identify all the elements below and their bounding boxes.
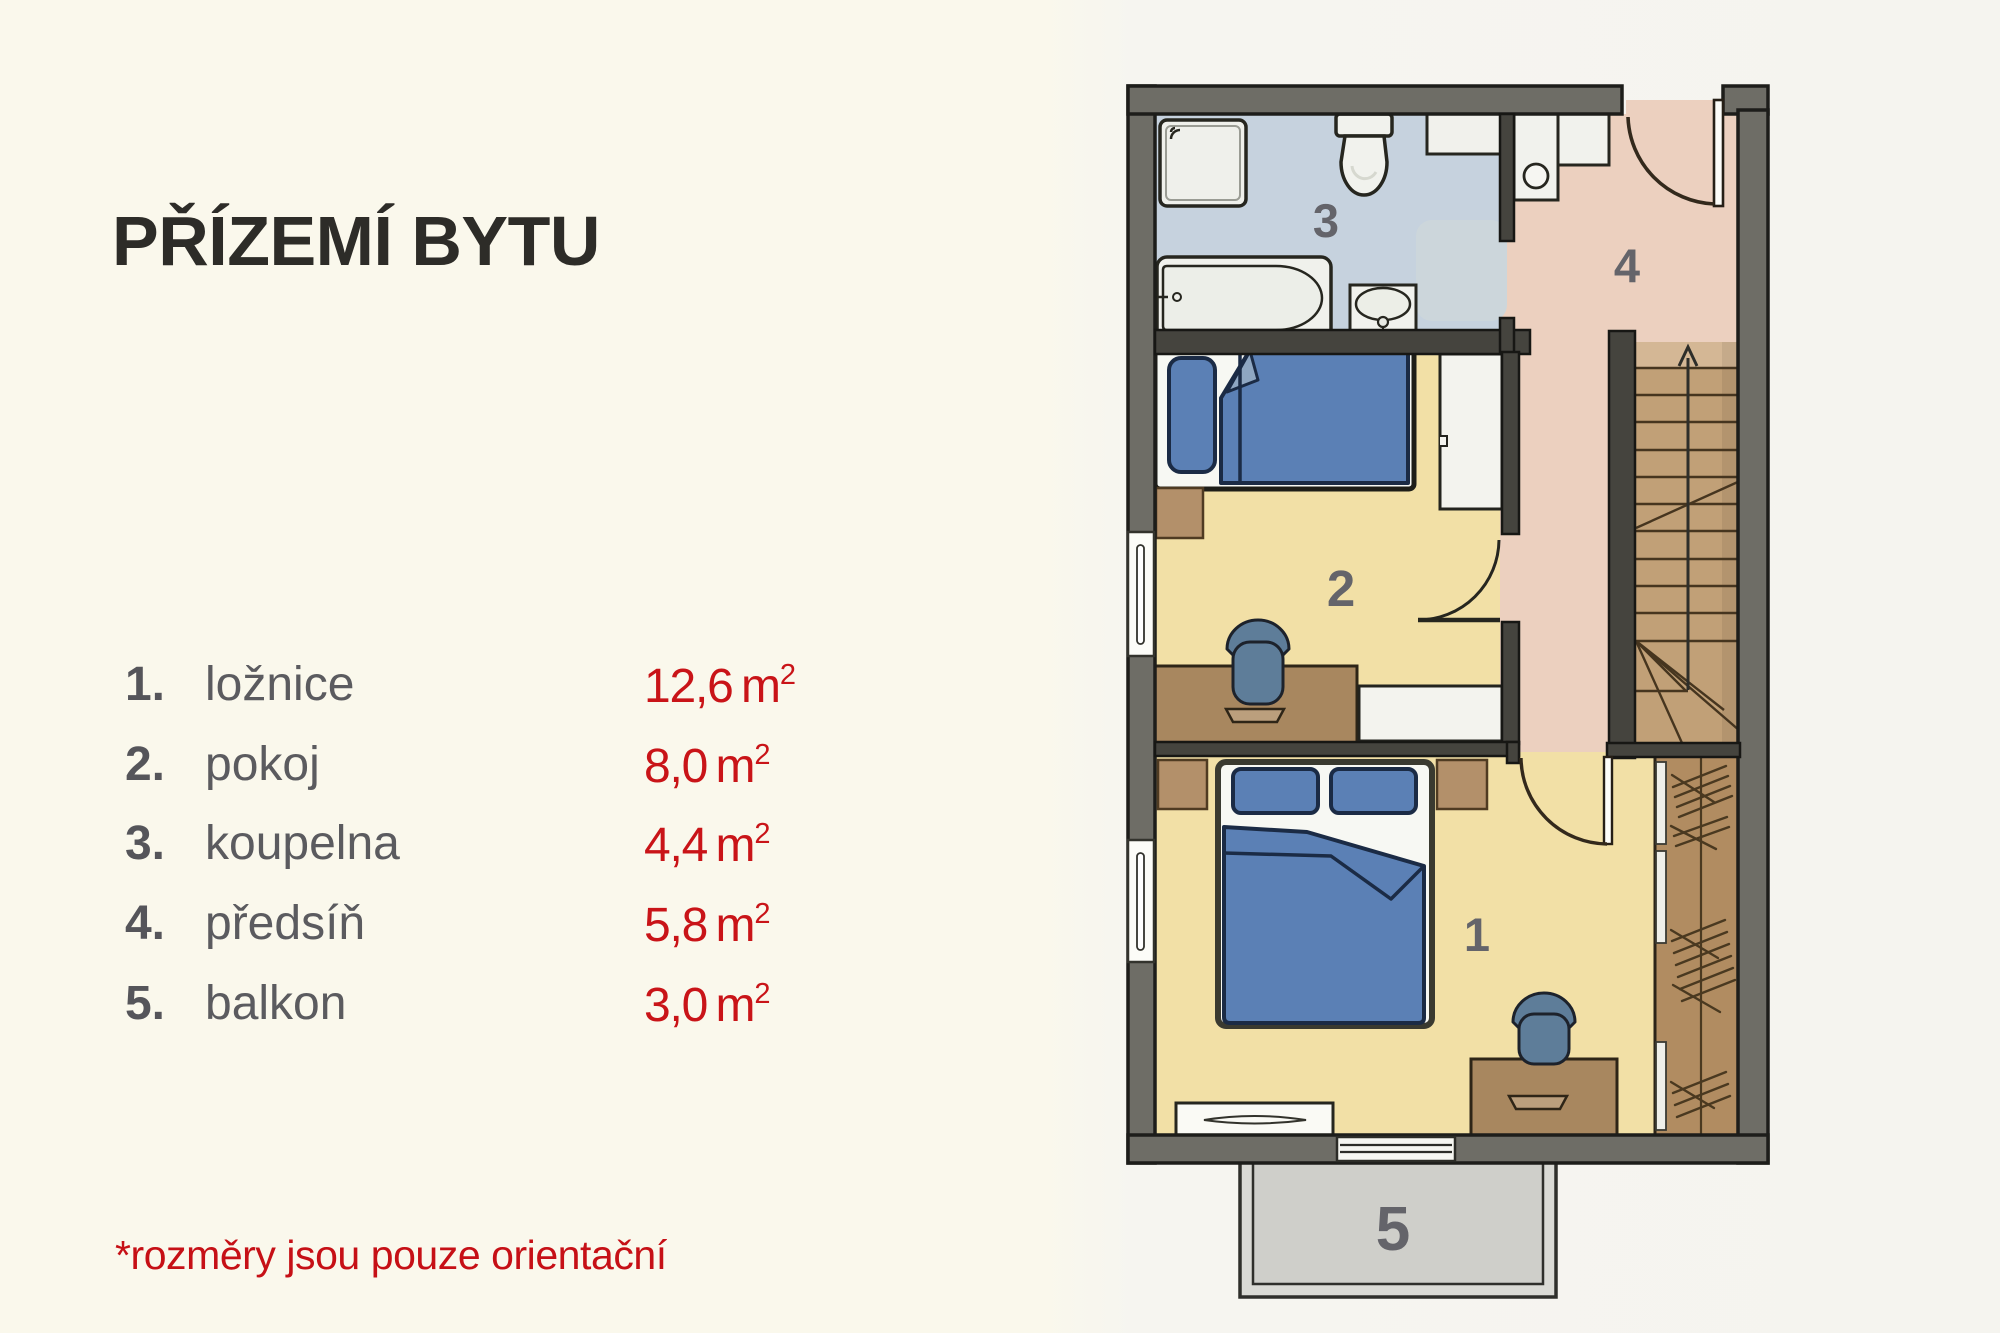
svg-text:1: 1 [1464, 908, 1490, 961]
svg-text:2: 2 [1327, 560, 1355, 617]
svg-text:5: 5 [1376, 1195, 1410, 1264]
svg-text:3: 3 [1313, 194, 1339, 247]
svg-text:4: 4 [1614, 239, 1640, 292]
